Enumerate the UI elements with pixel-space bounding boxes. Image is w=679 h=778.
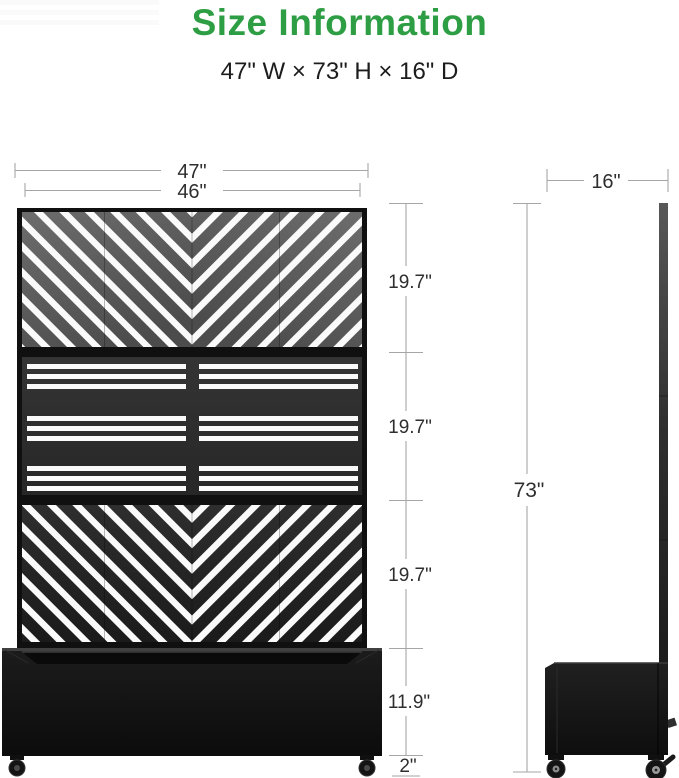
dim-section-heights: 19.7" 19.7" 19.7" 11.9" 2" <box>388 204 432 778</box>
front-bottom-chevron-panel <box>17 500 367 648</box>
top-section-height-label: 19.7" <box>388 272 432 293</box>
front-view-diagram <box>0 0 382 776</box>
middle-section-height-label: 19.7" <box>388 417 432 438</box>
planter-height-label: 11.9" <box>388 692 430 713</box>
front-right-caster <box>359 755 375 776</box>
dim-overall-width: 47" <box>15 161 368 183</box>
size-information-page: Size Information 47" W × 73" H × 16" D <box>0 0 679 778</box>
dim-depth: 16" <box>547 169 668 193</box>
dim-total-height: 73" <box>513 204 544 773</box>
panel-width-label: 46" <box>177 181 206 203</box>
side-view-diagram <box>545 203 677 778</box>
side-screen-bar <box>659 203 677 728</box>
side-planter-box <box>545 663 668 755</box>
overall-width-label: 47" <box>177 161 206 183</box>
front-left-caster <box>9 755 25 776</box>
size-diagram: 47" 46" 19.7" 19.7" 19.7" 11.9" 2" <box>0 0 679 778</box>
total-height-label: 73" <box>514 479 545 502</box>
side-left-caster <box>547 755 565 778</box>
front-top-chevron-panel <box>17 208 367 352</box>
front-planter-box <box>2 648 382 756</box>
caster-height-label: 2" <box>399 756 416 777</box>
bottom-section-height-label: 19.7" <box>388 565 432 586</box>
depth-label: 16" <box>591 171 620 193</box>
side-right-caster <box>646 755 673 778</box>
dim-panel-width: 46" <box>25 181 360 203</box>
